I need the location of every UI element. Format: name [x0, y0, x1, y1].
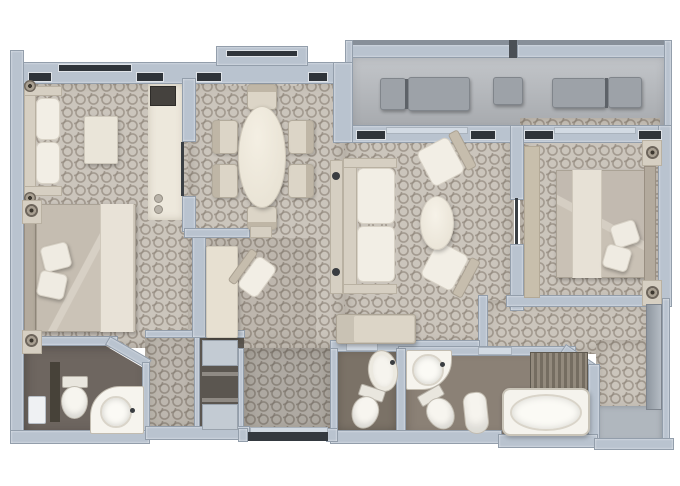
closet-shelf-bottom: [202, 404, 238, 430]
balcony-side-table: [493, 77, 523, 105]
lamp-bed1-top: [25, 204, 38, 217]
dining-table: [238, 106, 286, 208]
hall-wall-shelf: [250, 226, 272, 238]
wc-wall-cabinet: [28, 396, 46, 424]
landing-floor: [598, 406, 662, 442]
sun-lounger-left-head: [380, 78, 406, 110]
closet-shelf-top: [202, 340, 238, 366]
wall-bedroom2-left-upper: [510, 125, 524, 200]
balcony-window-sill-2: [470, 130, 496, 140]
window-top-strip: [58, 64, 132, 72]
minibar-dot-2: [154, 205, 163, 214]
dining-chair-right-1: [288, 120, 314, 154]
sun-lounger-left-gap: [405, 79, 408, 109]
kitchenette-appliance: [150, 86, 176, 106]
wc-corner-basin: [100, 396, 132, 428]
sofa2-cushion-2: [357, 226, 395, 282]
main-bath-basin: [412, 354, 444, 386]
sun-lounger-left-body: [408, 77, 470, 111]
minibar-dot-1: [154, 194, 163, 203]
wall-bottom-right: [594, 438, 674, 450]
sun-lounger-right-head: [608, 77, 642, 108]
wall-hall-left: [192, 228, 206, 338]
dresser-bedroom2: [524, 146, 540, 298]
balcony-railing-divider: [509, 40, 517, 58]
wall-entry-bottom-left: [238, 428, 248, 442]
wall-hall-stub: [184, 228, 250, 238]
wc-toilet-bowl: [61, 386, 88, 419]
wc-faucet: [130, 408, 135, 413]
wall-right-lower: [662, 298, 670, 444]
closet-rail-2: [202, 398, 238, 402]
lamp-bed2-top: [646, 146, 659, 159]
door-leaf-bedroom1: [181, 142, 184, 196]
bed1-pillow-2: [36, 269, 69, 300]
floor-lamp-icon: [24, 80, 36, 92]
lamp-bed2-bottom: [646, 286, 659, 299]
door-main-bathroom: [478, 347, 512, 355]
lamp-bed1-bottom: [25, 334, 38, 347]
window-sill-4: [308, 72, 328, 82]
balcony-window-sill-4: [638, 130, 662, 140]
sun-lounger-right-body: [552, 78, 606, 108]
balcony-railing-left: [345, 40, 511, 58]
bed2-headboard: [644, 166, 656, 282]
sofa1-cushion-2: [36, 142, 60, 184]
entry-floor: [244, 348, 332, 434]
bed2-foot-runner: [572, 170, 602, 278]
sofa2-cushion-1: [357, 168, 395, 224]
sofa2-arm-bottom: [343, 284, 397, 294]
sofa1-cushion-1: [36, 98, 60, 140]
balcony-door-bedroom2: [554, 127, 636, 134]
console-lamp-bottom: [332, 268, 340, 276]
bench-cushion: [354, 316, 414, 342]
left-hall-floor: [145, 330, 200, 432]
window-sill-3: [196, 72, 222, 82]
wc-toilet: [60, 376, 88, 420]
entry-threshold: [248, 432, 328, 441]
wall-smallbath-left: [330, 348, 338, 434]
wc-partition: [50, 362, 60, 422]
main-bath-faucet: [440, 362, 445, 367]
wall-bedroom1-right-lower: [182, 196, 196, 232]
wall-closet-left: [194, 336, 200, 434]
wardrobe: [646, 304, 662, 410]
bathtub-basin: [510, 394, 582, 431]
shower-screen: [530, 352, 588, 390]
balcony-railing-right: [517, 40, 672, 58]
window-sill-2: [136, 72, 164, 82]
balcony-window-sill-1: [356, 130, 386, 140]
bidet: [462, 391, 490, 435]
desk: [206, 246, 238, 338]
sofa2-back: [343, 158, 357, 294]
small-bath-faucet: [390, 360, 395, 365]
coffee-table-bedroom1: [84, 116, 118, 164]
wall-dining-stub: [333, 62, 353, 143]
closet-rail-1: [202, 372, 238, 376]
bed1-foot-runner: [100, 204, 134, 332]
dining-chair-left-1: [212, 120, 238, 154]
wall-bottom-mainbath: [498, 434, 598, 448]
sofa1-back: [24, 86, 36, 196]
console-lamp-top: [332, 172, 340, 180]
sofa2-arm-top: [343, 158, 397, 168]
sun-lounger-right-gap: [605, 78, 608, 108]
wall-entry-left: [238, 348, 244, 432]
wall-bedroom1-right-upper: [182, 78, 196, 142]
bay-window-glass: [226, 50, 298, 57]
living-coffee-table: [420, 196, 454, 250]
wall-left: [10, 50, 24, 444]
door-leaf-bedroom2: [515, 198, 518, 244]
balcony-window-sill-3: [524, 130, 554, 140]
dining-chair-left-2: [212, 164, 238, 198]
wall-smallbath-right: [396, 348, 406, 434]
floor-plan: [0, 0, 680, 486]
dining-chair-right-2: [288, 164, 314, 198]
